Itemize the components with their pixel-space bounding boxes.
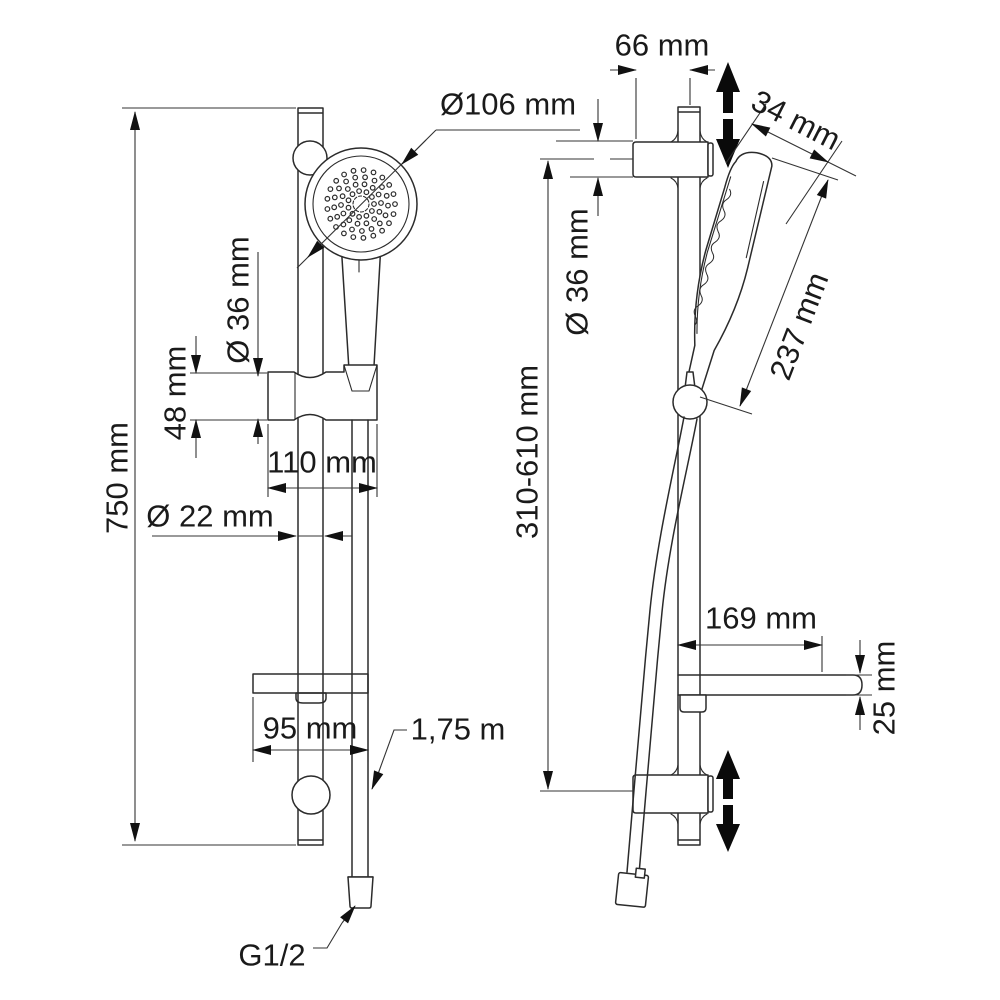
hand-shower-side [664,146,777,418]
technical-drawing: 750 mm Ø106 mm Ø 36 mm 48 mm 110 mm [0,0,1000,1000]
bottom-bracket-wall-flange [708,776,713,812]
bottom-bracket-knob-front [292,776,330,814]
dim-bracket-diameter-side: Ø 36 mm [556,99,633,336]
nozzle-dot [364,221,369,226]
dim-shelf-thickness-label: 25 mm [867,641,902,736]
dim-holder-diameter-label: Ø 36 mm [221,236,256,363]
shelf-plate-side [678,675,862,695]
nozzle-dot [328,187,333,192]
nozzle-dot [332,205,337,210]
nozzle-dot [372,178,377,183]
nozzle-dot [353,182,358,187]
shelf-collar-side [680,695,706,712]
nozzle-dot [325,197,330,202]
dim-holder-diameter-front: Ø 36 mm [221,236,259,444]
rail-bracket-flares [671,131,707,824]
nozzle-dot [379,201,384,206]
nozzle-dot [363,175,368,180]
nozzle-dot [376,192,381,197]
nozzle-dot [361,168,366,173]
nozzle-dot [334,179,339,184]
top-wall-bracket-side [633,142,708,177]
handset-outline-side [664,146,777,418]
dim-shelf-width-label: 95 mm [263,711,358,746]
nozzle-dot [325,207,330,212]
nozzle-dot [342,172,347,177]
nozzle-dot [370,186,375,191]
dim-head-diameter-label: Ø106 mm [440,87,576,122]
connector-notch-side [635,868,645,878]
nozzle-dot [372,202,377,207]
nozzle-dot [391,192,396,197]
nozzle-dot [386,203,391,208]
nozzle-dot [377,210,382,215]
dim-hose-length-label: 1,75 m [411,712,506,747]
nozzle-dot [337,186,342,191]
nozzle-dot [346,187,351,192]
nozzle-dot [339,203,344,208]
nozzle-dot [362,182,367,187]
nozzle-dot [383,213,388,218]
nozzle-dot [335,215,340,220]
dim-hose-length: 1,75 m [372,712,505,790]
nozzle-dot [350,227,355,232]
height-adjust-arrows-top-icon [716,62,740,168]
nozzle-dot [341,211,346,216]
dim-shelf-depth-label: 169 mm [705,601,817,636]
dim-connector-thread: G1/2 [238,906,355,973]
nozzle-dot [387,183,392,188]
dim-connector-thread-label: G1/2 [238,938,305,973]
nozzle-dot [344,179,349,184]
slider-knob-side [673,385,707,419]
nozzle-dot [346,198,351,203]
hose-connector-front [348,877,373,908]
top-bracket-wall-flange [708,143,713,176]
dim-rail-diameter: Ø 22 mm [146,499,352,537]
soap-shelf-front [253,674,368,703]
nozzle-dot [353,175,358,180]
hose-connector-side [615,866,649,907]
dim-shelf-thickness: 25 mm [846,640,902,735]
nozzle-dot [333,195,338,200]
nozzle-dot [347,218,352,223]
nozzle-dot [371,233,376,238]
front-view [253,108,417,908]
nozzle-dot [351,169,356,174]
nozzle-dot [351,235,356,240]
technical-drawing-page: 750 mm Ø106 mm Ø 36 mm 48 mm 110 mm [0,0,1000,1000]
nozzle-dot [364,190,369,195]
nozzle-dot [393,202,398,207]
dim-holder-height-label: 48 mm [158,346,193,441]
nozzle-dot [369,227,374,232]
dim-total-height-label: 750 mm [100,422,135,534]
nozzle-dot [370,209,375,214]
nozzle-dot [342,231,347,236]
dim-holder-width-label: 110 mm [267,445,377,480]
nozzle-dot [371,170,376,175]
arrow-up-icon [716,750,740,799]
nozzle-dot [380,175,385,180]
dim-holder-adjust-range-label: 310-610 mm [510,365,545,539]
nozzle-dot [372,217,377,222]
shower-rail-side [678,107,700,845]
dim-shelf-width: 95 mm [253,697,368,762]
shelf-tab-front [296,693,326,703]
soap-shelf-side [678,675,862,712]
dim-bracket-diameter-label: Ø 36 mm [560,208,595,335]
dim-holder-width: 110 mm [267,424,377,497]
nozzle-dot [361,236,366,241]
nozzle-dot [350,192,355,197]
nozzle-dot [364,214,369,219]
dim-wall-offset-label: 66 mm [615,28,710,63]
height-adjust-arrows-bottom-icon [716,750,740,852]
nozzle-dot [360,229,365,234]
arrow-up-icon [716,62,740,113]
arrow-down-icon [716,805,740,852]
nozzle-dot [340,194,345,199]
nozzle-dot [384,194,389,199]
nozzle-dot [357,189,362,194]
dim-rail-diameter-label: Ø 22 mm [146,499,273,534]
shelf-plate-front [253,674,368,693]
nozzle-dot [346,205,351,210]
hand-shower-front [305,148,417,390]
dimensions: 750 mm Ø106 mm Ø 36 mm 48 mm 110 mm [100,28,902,973]
nozzle-dot [355,221,360,226]
nozzle-dot [391,212,396,217]
nozzle-dot [357,215,362,220]
dim-handset-length-label: 237 mm [763,267,836,384]
nozzle-dot [378,221,383,226]
nozzle-dot [328,216,333,221]
nozzle-dot [387,221,392,226]
nozzle-dot [380,228,385,233]
